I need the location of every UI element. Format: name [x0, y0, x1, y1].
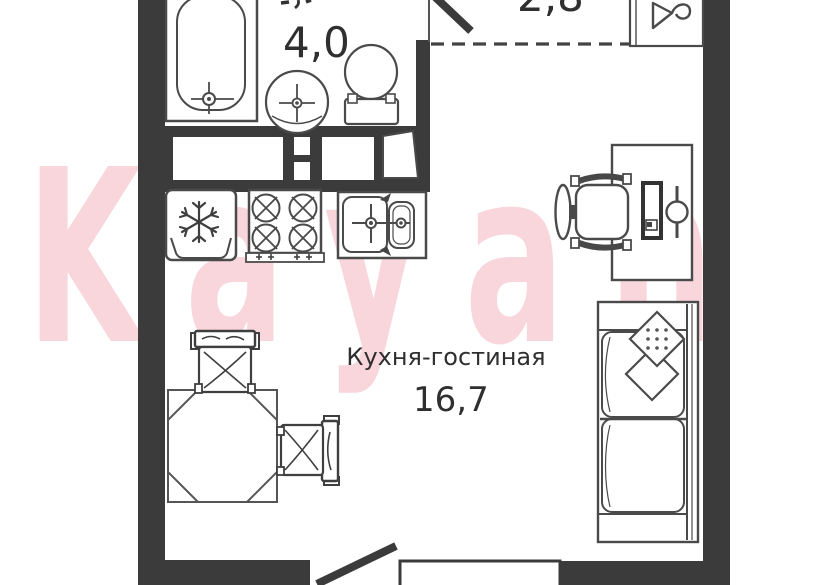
wall-right — [703, 0, 730, 585]
washbasin — [266, 71, 328, 133]
balcony-door — [317, 546, 396, 584]
floor-plan-drawing — [0, 0, 828, 585]
fridge — [166, 190, 236, 260]
entrance-door — [433, 0, 471, 31]
wall-hall-divider — [416, 40, 430, 192]
kitchen-sink — [338, 192, 426, 258]
dining-table — [168, 390, 277, 502]
sofa — [598, 302, 698, 542]
room-area-bathroom: 4,0 — [283, 22, 343, 64]
toilet — [345, 45, 398, 124]
balcony-window — [400, 561, 560, 585]
room-label-kitchen-living: Кухня-гостиная — [346, 345, 546, 369]
dining-chair-right — [277, 416, 339, 485]
wall-left — [138, 0, 165, 585]
stove — [246, 190, 324, 262]
bathroom-door-leaf — [383, 131, 418, 178]
bathtub — [166, 0, 257, 121]
room-area-hallway: 2,8 — [517, 0, 577, 18]
monitor — [643, 183, 661, 238]
cutoff-number-marks — [281, 0, 311, 8]
vent-shaft — [630, 0, 703, 46]
office-chair — [556, 174, 632, 250]
wall-bottom-left — [138, 560, 310, 585]
room-area-kitchen-living: 16,7 — [413, 383, 479, 417]
floor-plan: Kayan — [0, 0, 828, 585]
wall-bottom-right — [560, 561, 708, 585]
dining-chair-top — [191, 331, 259, 393]
